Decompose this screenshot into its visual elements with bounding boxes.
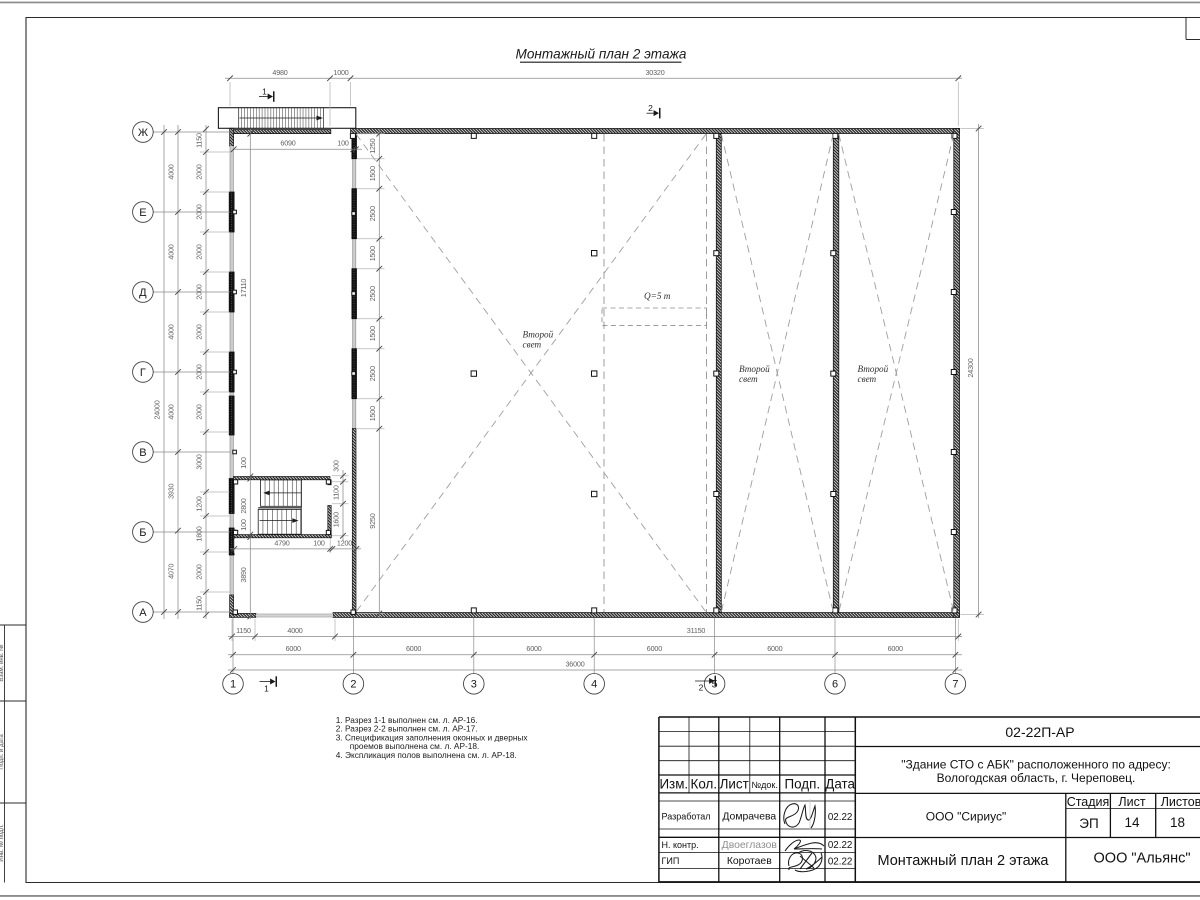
svg-text:6000: 6000 — [286, 644, 301, 653]
svg-text:1150: 1150 — [195, 133, 204, 148]
svg-text:Лист: Лист — [720, 777, 749, 792]
svg-text:02.22: 02.22 — [828, 857, 853, 868]
svg-text:3930: 3930 — [167, 484, 176, 499]
svg-text:ООО "Сириус": ООО "Сириус" — [926, 810, 1006, 824]
svg-text:Дата: Дата — [825, 777, 855, 792]
svg-text:1150: 1150 — [195, 596, 204, 611]
svg-text:2: 2 — [648, 103, 653, 113]
svg-text:4: 4 — [591, 679, 597, 691]
svg-text:1: 1 — [230, 679, 236, 691]
svg-text:24000: 24000 — [153, 400, 162, 419]
svg-text:100: 100 — [337, 139, 349, 148]
svg-text:6000: 6000 — [888, 644, 903, 653]
svg-text:№док.: №док. — [752, 780, 778, 790]
svg-text:3890: 3890 — [239, 567, 248, 582]
svg-text:Инв. № подл.: Инв. № подл. — [0, 824, 5, 862]
svg-text:Кол.: Кол. — [691, 777, 718, 792]
svg-text:6000: 6000 — [647, 644, 662, 653]
svg-text:1: 1 — [264, 683, 269, 693]
svg-text:4790: 4790 — [274, 538, 289, 547]
svg-text:4000: 4000 — [287, 626, 302, 635]
svg-text:2000: 2000 — [195, 564, 204, 579]
svg-text:Взам. инв. №: Взам. инв. № — [0, 644, 5, 681]
svg-text:"Здание СТО с АБК" расположенн: "Здание СТО с АБК" расположенного по адр… — [901, 758, 1171, 772]
svg-text:Ж: Ж — [138, 127, 148, 139]
svg-text:30320: 30320 — [646, 68, 665, 77]
svg-text:02-22П-АР: 02-22П-АР — [1005, 724, 1074, 740]
svg-text:6090: 6090 — [280, 139, 295, 148]
svg-text:100: 100 — [239, 457, 248, 469]
svg-text:Д: Д — [139, 287, 147, 299]
svg-text:100: 100 — [239, 519, 248, 531]
svg-text:Е: Е — [139, 207, 146, 219]
svg-text:6000: 6000 — [406, 644, 421, 653]
svg-text:1500: 1500 — [368, 406, 377, 421]
svg-text:2500: 2500 — [368, 286, 377, 301]
svg-text:В: В — [139, 447, 146, 459]
svg-text:6000: 6000 — [767, 644, 782, 653]
svg-text:Второй: Второй — [523, 330, 554, 340]
svg-text:3: 3 — [471, 679, 477, 691]
svg-text:1500: 1500 — [368, 166, 377, 181]
svg-text:02.22: 02.22 — [828, 812, 853, 823]
svg-text:31150: 31150 — [687, 626, 706, 635]
svg-text:18: 18 — [1170, 815, 1185, 830]
svg-text:6000: 6000 — [526, 644, 541, 653]
svg-text:ЭП: ЭП — [1079, 816, 1098, 831]
svg-text:36000: 36000 — [566, 659, 585, 668]
svg-text:1200: 1200 — [195, 496, 204, 511]
svg-text:1150: 1150 — [236, 626, 251, 635]
svg-text:Изм.: Изм. — [659, 777, 688, 792]
svg-text:7: 7 — [952, 679, 958, 691]
svg-text:2500: 2500 — [368, 206, 377, 221]
svg-text:Монтажный план 2 этажа: Монтажный план 2 этажа — [877, 853, 1049, 869]
svg-text:Г: Г — [140, 367, 146, 379]
svg-text:17110: 17110 — [239, 279, 248, 298]
svg-text:300: 300 — [332, 460, 341, 472]
svg-text:Стадия: Стадия — [1067, 795, 1110, 809]
svg-text:1000: 1000 — [333, 68, 348, 77]
svg-text:6: 6 — [832, 679, 838, 691]
svg-text:100: 100 — [313, 538, 325, 547]
svg-text:Коротаев: Коротаев — [727, 856, 772, 867]
svg-text:ООО "Альянс": ООО "Альянс" — [1094, 851, 1191, 867]
svg-text:1500: 1500 — [368, 246, 377, 261]
svg-text:2000: 2000 — [195, 364, 204, 379]
svg-text:1250: 1250 — [368, 138, 377, 153]
svg-text:Второй: Второй — [739, 364, 770, 374]
svg-text:2800: 2800 — [239, 498, 248, 513]
svg-text:Q=5 т: Q=5 т — [644, 291, 671, 301]
svg-text:Б: Б — [139, 527, 146, 539]
svg-text:1500: 1500 — [368, 326, 377, 341]
svg-text:4070: 4070 — [167, 564, 176, 579]
svg-text:Подп.: Подп. — [785, 777, 821, 792]
svg-text:Разработал: Разработал — [662, 812, 711, 822]
svg-text:2000: 2000 — [195, 244, 204, 259]
svg-text:02.22: 02.22 — [828, 840, 853, 851]
svg-text:4000: 4000 — [167, 404, 176, 419]
svg-text:24300: 24300 — [966, 358, 975, 377]
svg-text:2500: 2500 — [368, 366, 377, 381]
svg-text:2000: 2000 — [195, 404, 204, 419]
svg-text:Домрачева: Домрачева — [722, 812, 776, 823]
svg-text:Монтажный план 2 этажа: Монтажный план 2 этажа — [516, 47, 687, 62]
svg-text:свет: свет — [858, 374, 877, 384]
svg-text:Вологодская область, г. Черепо: Вологодская область, г. Череповец. — [937, 771, 1136, 785]
svg-text:1200: 1200 — [337, 538, 352, 547]
svg-text:2000: 2000 — [195, 324, 204, 339]
svg-text:Лист: Лист — [1118, 795, 1145, 809]
svg-text:4. Экспликация полов выполнена: 4. Экспликация полов выполнена см. л. АР… — [336, 750, 517, 760]
svg-text:2000: 2000 — [195, 284, 204, 299]
svg-text:Двоеглазов: Двоеглазов — [722, 840, 778, 851]
svg-text:4980: 4980 — [272, 68, 287, 77]
svg-text:2000: 2000 — [195, 204, 204, 219]
svg-text:9250: 9250 — [368, 513, 377, 528]
svg-text:4000: 4000 — [167, 164, 176, 179]
svg-text:свет: свет — [739, 374, 758, 384]
svg-text:1: 1 — [262, 86, 267, 96]
svg-text:14: 14 — [1124, 815, 1140, 830]
svg-text:Н. контр.: Н. контр. — [662, 840, 699, 850]
svg-text:Листов: Листов — [1161, 795, 1200, 809]
svg-text:4000: 4000 — [167, 324, 176, 339]
svg-text:4000: 4000 — [167, 244, 176, 259]
svg-text:3000: 3000 — [195, 454, 204, 469]
svg-text:ГИП: ГИП — [662, 856, 680, 866]
svg-text:1800: 1800 — [195, 526, 204, 541]
svg-text:Второй: Второй — [858, 364, 889, 374]
svg-text:2000: 2000 — [195, 164, 204, 179]
svg-text:свет: свет — [523, 339, 542, 349]
svg-text:Подп. и дата: Подп. и дата — [0, 734, 5, 770]
svg-text:2: 2 — [350, 679, 356, 691]
svg-text:А: А — [139, 607, 147, 619]
svg-text:2: 2 — [699, 683, 704, 693]
svg-text:1100: 1100 — [332, 485, 341, 500]
svg-text:1600: 1600 — [332, 512, 341, 527]
